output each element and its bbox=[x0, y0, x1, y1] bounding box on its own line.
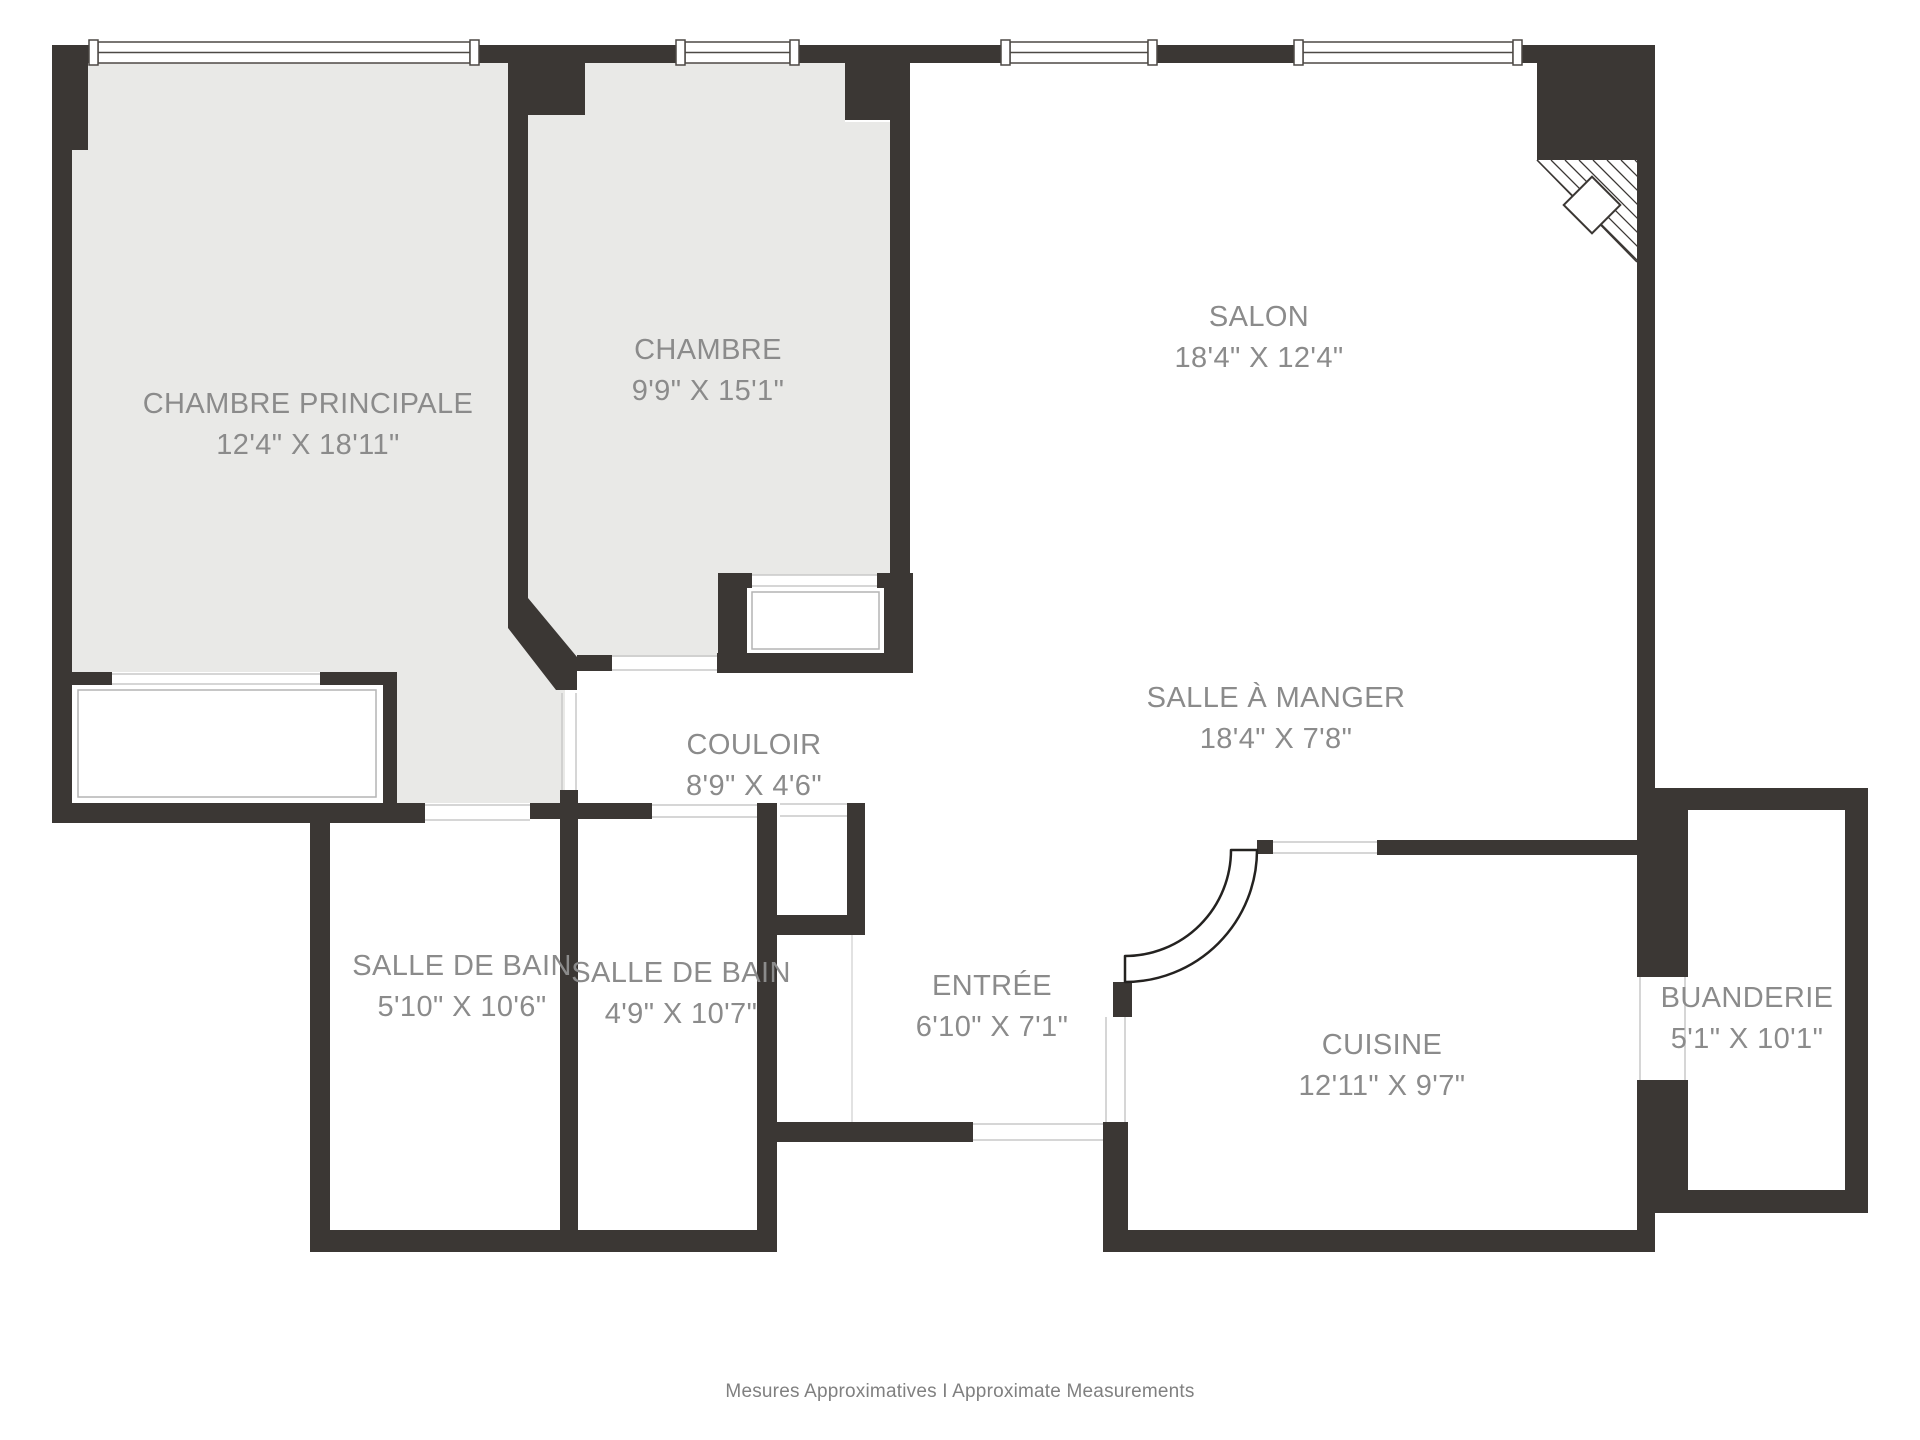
wall bbox=[528, 63, 585, 115]
wall bbox=[1157, 45, 1294, 63]
wall bbox=[383, 672, 397, 803]
room-label-salle-de-bain-2: SALLE DE BAIN 4'9" X 10'7" bbox=[571, 953, 791, 1035]
room-label-couloir: COULOIR 8'9" X 4'6" bbox=[686, 725, 822, 807]
room-label-entree: ENTRÉE 6'10" X 7'1" bbox=[916, 966, 1069, 1048]
floor-plan-page: CHAMBRE PRINCIPALE 12'4" X 18'11" CHAMBR… bbox=[0, 0, 1920, 1440]
floor-plan-drawing bbox=[0, 0, 1920, 1440]
room-name: COULOIR bbox=[686, 725, 822, 766]
room-dimensions: 12'4" X 18'11" bbox=[143, 425, 474, 466]
wall bbox=[1688, 788, 1868, 810]
wall bbox=[72, 672, 112, 685]
room-dimensions: 4'9" X 10'7" bbox=[571, 994, 791, 1035]
column-diamond bbox=[1564, 177, 1621, 234]
room-dimensions: 18'4" X 12'4" bbox=[1174, 338, 1343, 379]
room-name: SALLE À MANGER bbox=[1147, 678, 1406, 719]
room-label-cuisine: CUISINE 12'11" X 9'7" bbox=[1299, 1025, 1466, 1107]
wall bbox=[847, 803, 865, 935]
window bbox=[89, 40, 479, 65]
room-dimensions: 5'10" X 10'6" bbox=[352, 987, 572, 1028]
room-dimensions: 9'9" X 15'1" bbox=[632, 371, 785, 412]
room-name: SALLE DE BAIN bbox=[352, 946, 572, 987]
master-closet-symbol bbox=[78, 690, 376, 797]
master-closet-door-opening bbox=[112, 674, 320, 684]
room-label-salle-a-manger: SALLE À MANGER 18'4" X 7'8" bbox=[1147, 678, 1406, 760]
wall bbox=[1637, 1213, 1655, 1252]
bedroom-closet-door-opening bbox=[752, 575, 877, 586]
window bbox=[1294, 40, 1522, 65]
arched-doorway bbox=[1125, 850, 1257, 982]
window bbox=[676, 40, 799, 65]
room-name: SALLE DE BAIN bbox=[571, 953, 791, 994]
wall bbox=[717, 653, 913, 673]
wall bbox=[310, 1230, 777, 1252]
wall bbox=[1377, 840, 1637, 855]
room-label-chambre: CHAMBRE 9'9" X 15'1" bbox=[632, 330, 785, 412]
wall bbox=[845, 45, 890, 120]
measurements-disclaimer: Mesures Approximatives I Approximate Mea… bbox=[725, 1381, 1194, 1403]
wall bbox=[1637, 45, 1655, 790]
wall bbox=[310, 818, 330, 1252]
room-label-buanderie: BUANDERIE 5'1" X 10'1" bbox=[1661, 978, 1834, 1060]
wall bbox=[1845, 788, 1868, 1213]
room-dimensions: 18'4" X 7'8" bbox=[1147, 719, 1406, 760]
dining-kitchen-opening bbox=[1273, 842, 1377, 853]
room-name: CHAMBRE bbox=[632, 330, 785, 371]
bedroom-door-opening bbox=[612, 656, 717, 670]
room-dimensions: 12'11" X 9'7" bbox=[1299, 1066, 1466, 1107]
wall bbox=[508, 45, 528, 620]
wall bbox=[577, 655, 612, 671]
bedroom-closet-symbol bbox=[752, 592, 879, 649]
room-dimensions: 6'10" X 7'1" bbox=[916, 1007, 1069, 1048]
wall bbox=[52, 45, 72, 823]
room-name: CHAMBRE PRINCIPALE bbox=[143, 384, 474, 425]
room-dimensions: 5'1" X 10'1" bbox=[1661, 1019, 1834, 1060]
wall bbox=[1637, 788, 1688, 977]
entry-kitchen-opening bbox=[1106, 1017, 1125, 1122]
arch-stub bbox=[1113, 982, 1132, 1017]
room-name: BUANDERIE bbox=[1661, 978, 1834, 1019]
wall bbox=[72, 45, 88, 150]
room-label-chambre-principale: CHAMBRE PRINCIPALE 12'4" X 18'11" bbox=[143, 384, 474, 466]
wall bbox=[1637, 1190, 1868, 1213]
room-label-salle-de-bain-1: SALLE DE BAIN 5'10" X 10'6" bbox=[352, 946, 572, 1028]
wall bbox=[52, 803, 425, 823]
room-name: ENTRÉE bbox=[916, 966, 1069, 1007]
front-door-opening bbox=[973, 1124, 1103, 1140]
wall bbox=[757, 1122, 973, 1142]
bathroom1-door-opening bbox=[425, 805, 530, 820]
room-dimensions: 8'9" X 4'6" bbox=[686, 766, 822, 807]
arch-stub bbox=[1257, 840, 1273, 854]
wall bbox=[1108, 1230, 1655, 1252]
wall bbox=[530, 803, 652, 819]
window bbox=[1001, 40, 1157, 65]
room-name: CUISINE bbox=[1299, 1025, 1466, 1066]
room-name: SALON bbox=[1174, 297, 1343, 338]
room-label-salon: SALON 18'4" X 12'4" bbox=[1174, 297, 1343, 379]
